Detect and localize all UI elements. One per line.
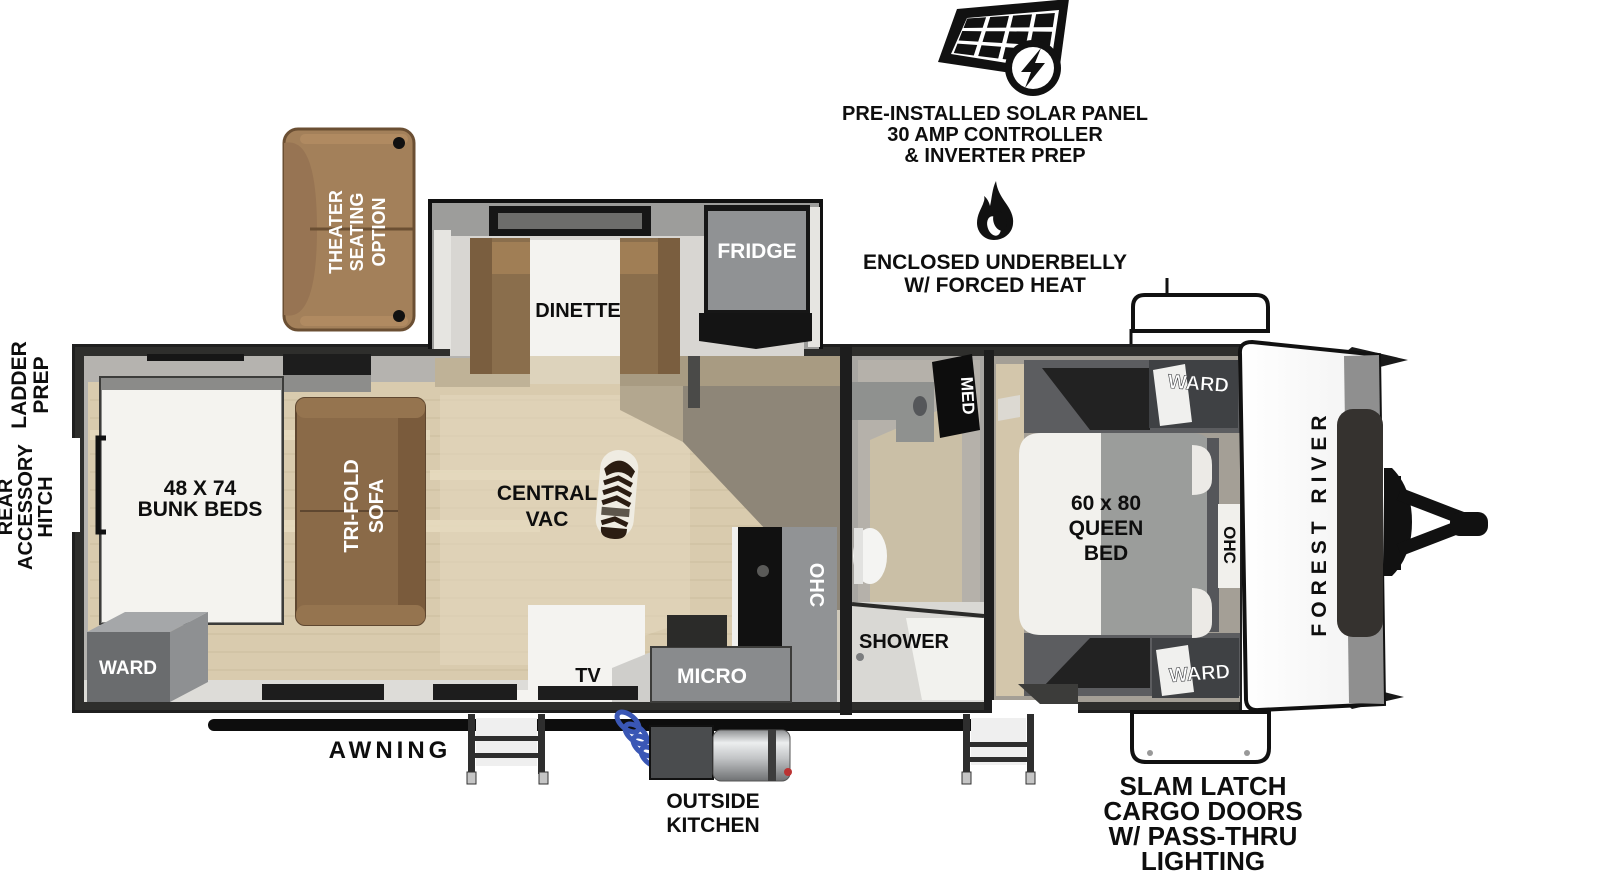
svg-text:HITCH: HITCH (35, 476, 57, 537)
svg-text:FOREST RIVER: FOREST RIVER (1308, 409, 1331, 636)
svg-text:& INVERTER PREP: & INVERTER PREP (904, 145, 1085, 167)
svg-text:OUTSIDEKITCHEN: OUTSIDEKITCHEN (666, 790, 759, 837)
svg-text:SHOWER: SHOWER (859, 631, 950, 653)
svg-text:MED: MED (957, 376, 978, 415)
svg-text:OPTION: OPTION (369, 197, 389, 266)
svg-text:FRIDGE: FRIDGE (717, 240, 796, 263)
svg-text:WARD: WARD (1168, 661, 1230, 687)
svg-text:PREP: PREP (30, 356, 53, 413)
svg-text:OHC: OHC (805, 563, 827, 607)
svg-text:W/ FORCED HEAT: W/ FORCED HEAT (904, 274, 1086, 297)
svg-text:WARD: WARD (1167, 371, 1229, 397)
svg-text:TV: TV (575, 665, 601, 687)
svg-text:TRI-FOLD: TRI-FOLD (341, 459, 363, 552)
svg-text:DINETTE: DINETTE (535, 300, 621, 322)
svg-text:PRE-INSTALLED SOLAR PANEL: PRE-INSTALLED SOLAR PANEL (842, 103, 1148, 125)
svg-text:SOFA: SOFA (366, 479, 388, 533)
svg-text:30 AMP CONTROLLER: 30 AMP CONTROLLER (887, 124, 1103, 146)
svg-text:SEATING: SEATING (347, 193, 367, 272)
svg-text:MICRO: MICRO (677, 665, 747, 688)
svg-text:ACCESSORY: ACCESSORY (15, 443, 37, 570)
svg-text:AWNING: AWNING (329, 737, 452, 764)
svg-text:ENCLOSED UNDERBELLY: ENCLOSED UNDERBELLY (863, 251, 1127, 274)
svg-text:LADDER: LADDER (8, 341, 31, 429)
svg-text:LIGHTING: LIGHTING (1141, 846, 1265, 873)
svg-text:OHC: OHC (1220, 526, 1239, 564)
svg-text:THEATER: THEATER (326, 190, 346, 274)
svg-text:WARD: WARD (99, 658, 157, 679)
